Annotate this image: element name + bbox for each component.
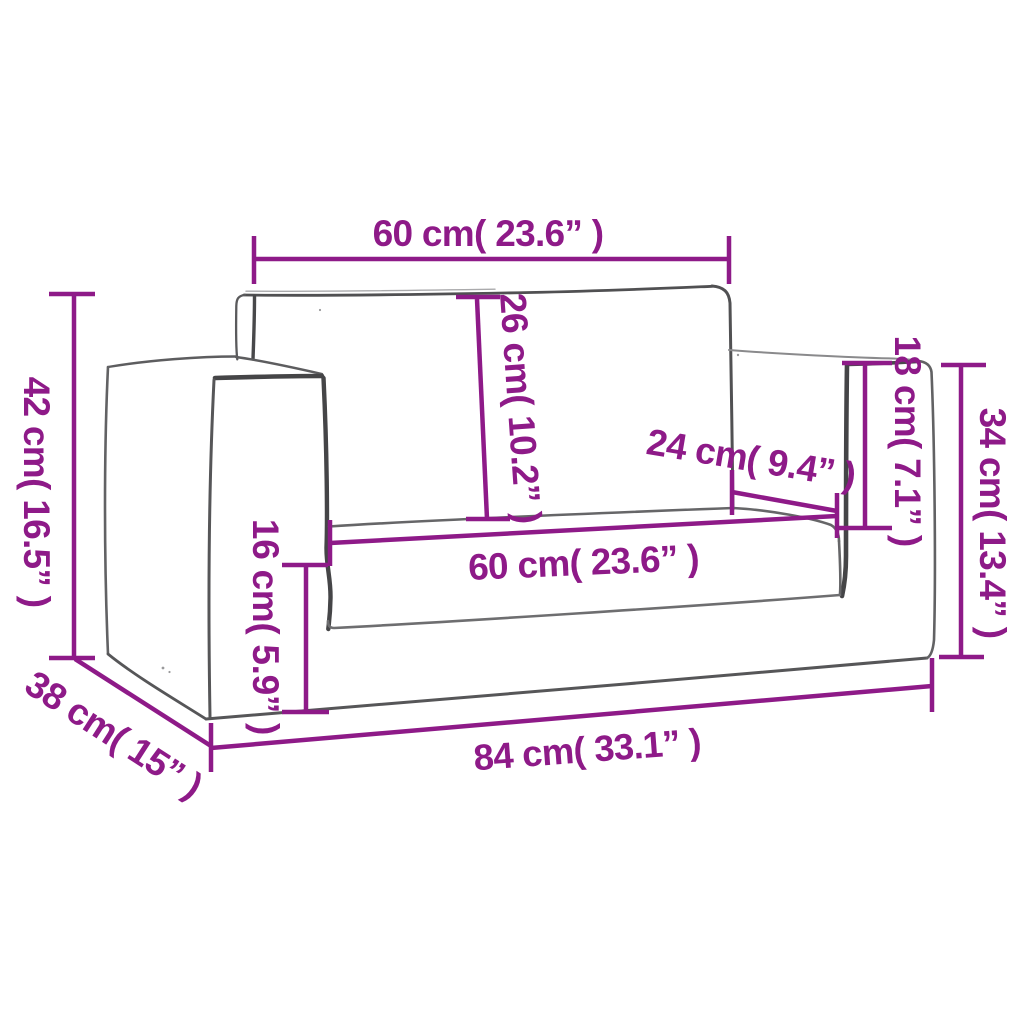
svg-text:16 cm( 5.9” ): 16 cm( 5.9” ): [245, 519, 286, 735]
svg-text:60 cm( 23.6” ): 60 cm( 23.6” ): [373, 213, 604, 254]
svg-text:42 cm( 16.5” ): 42 cm( 16.5” ): [16, 377, 57, 608]
svg-text:18 cm( 7.1” ): 18 cm( 7.1” ): [887, 336, 928, 547]
svg-text:34 cm( 13.4” ): 34 cm( 13.4” ): [972, 408, 1013, 639]
